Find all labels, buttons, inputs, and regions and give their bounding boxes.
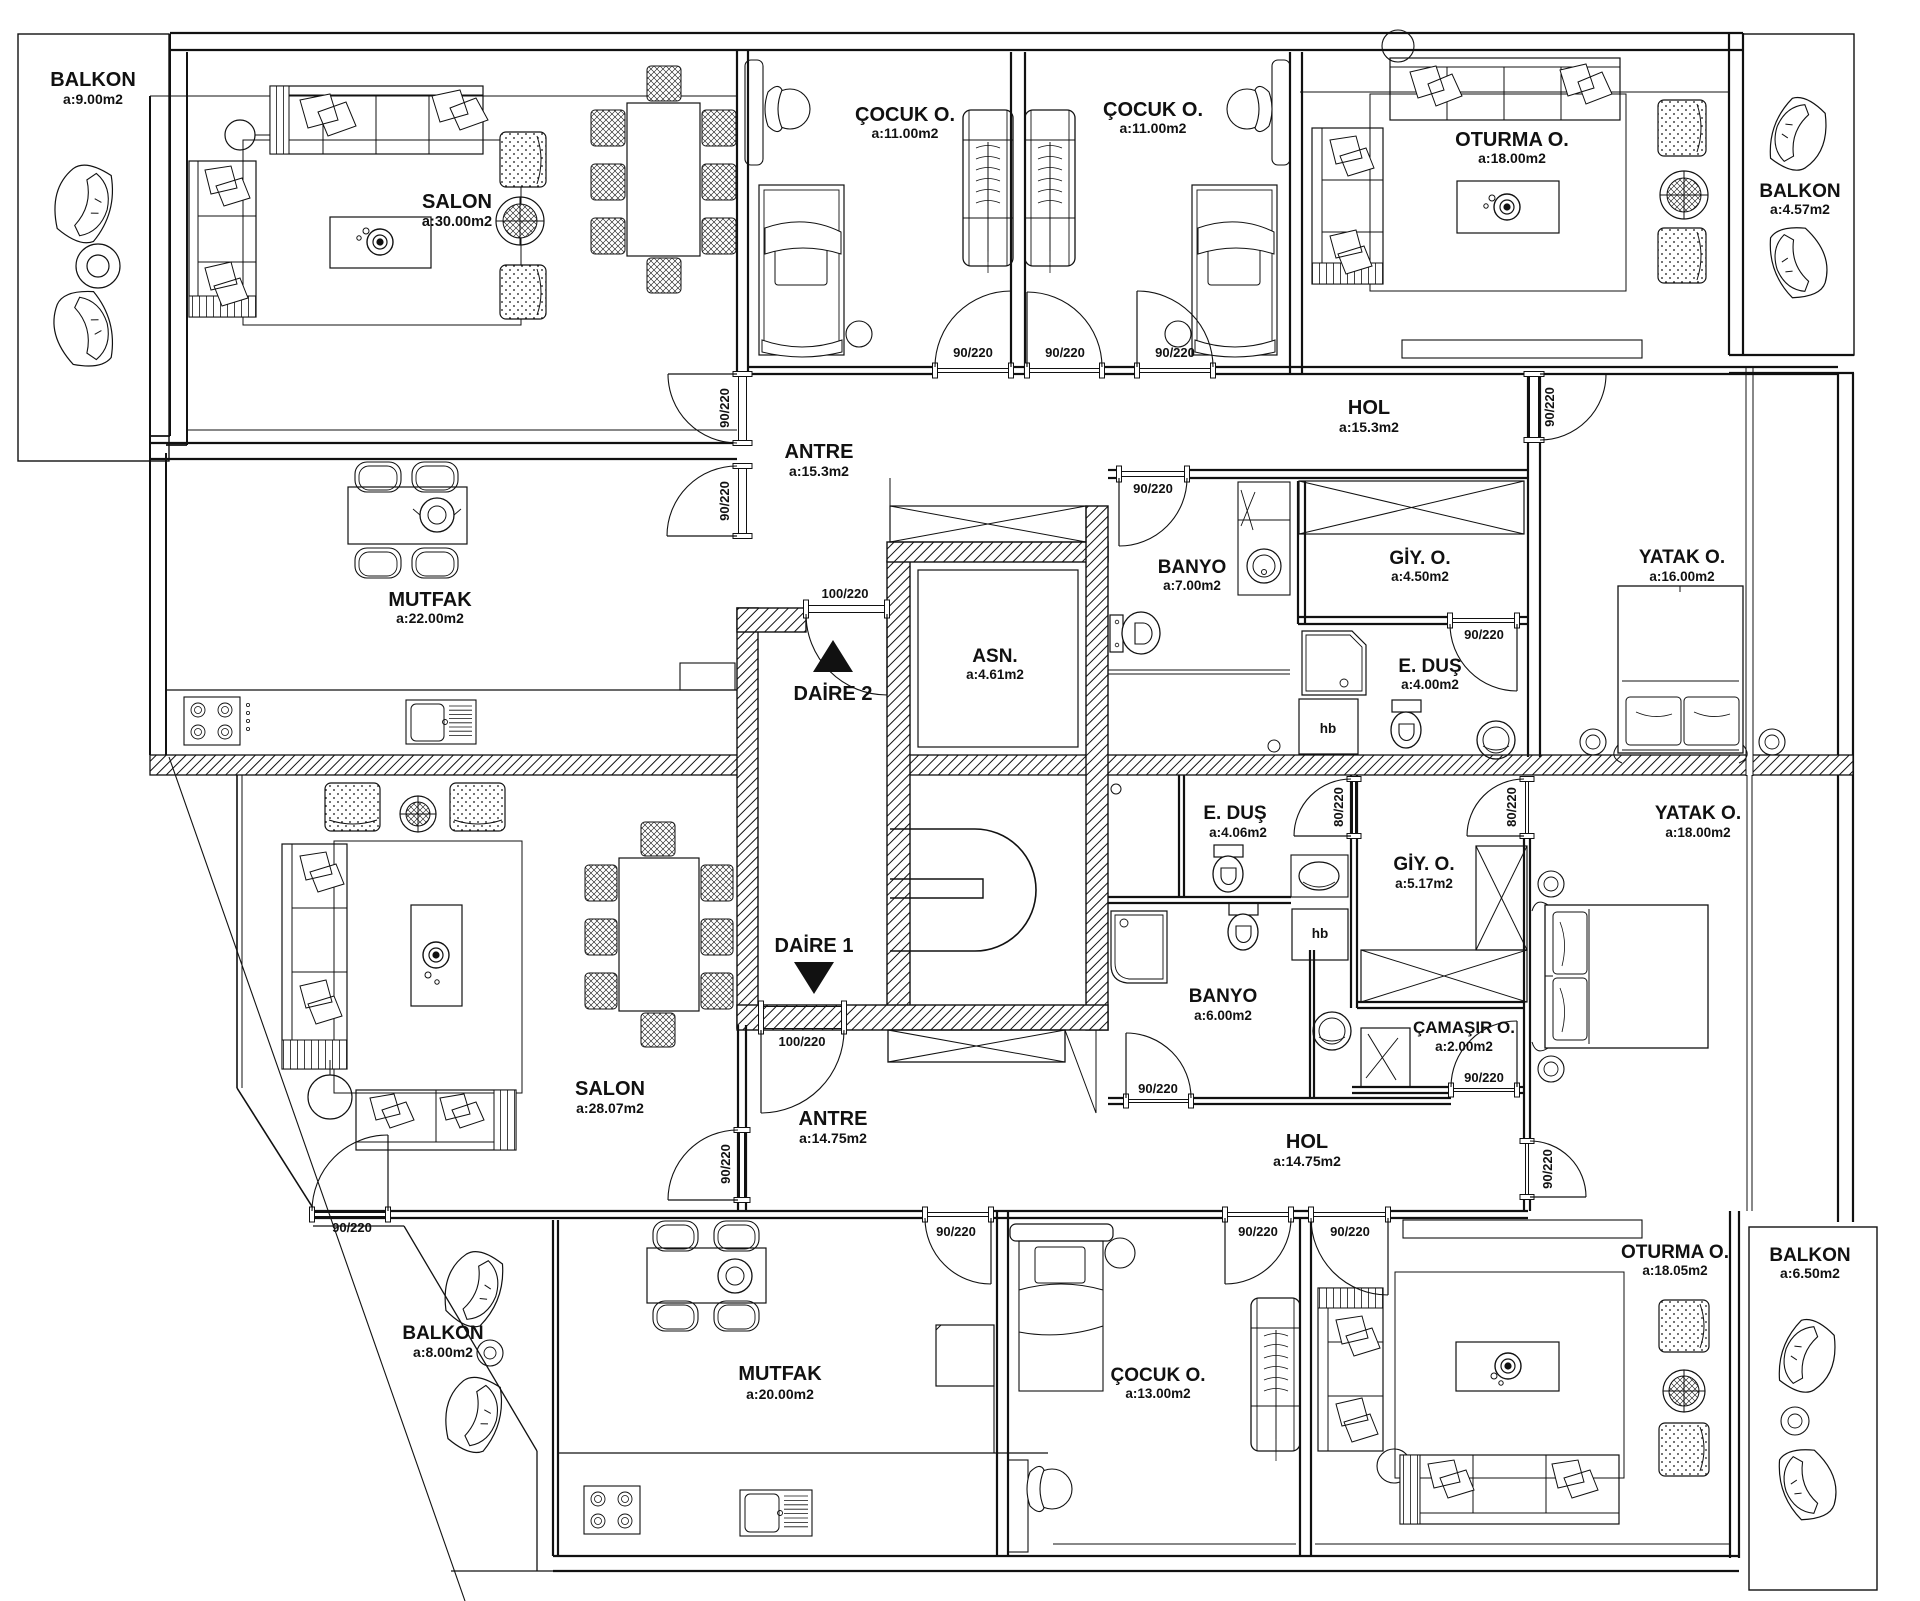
svg-text:OTURMA O.: OTURMA O. bbox=[1621, 1242, 1729, 1263]
svg-text:90/220: 90/220 bbox=[1540, 1149, 1555, 1189]
svg-text:90/220: 90/220 bbox=[332, 1220, 372, 1235]
svg-text:BANYO: BANYO bbox=[1158, 557, 1227, 578]
svg-text:OTURMA O.: OTURMA O. bbox=[1455, 129, 1569, 151]
svg-text:90/220: 90/220 bbox=[1464, 1070, 1504, 1085]
svg-text:90/220: 90/220 bbox=[1542, 387, 1557, 427]
svg-text:MUTFAK: MUTFAK bbox=[388, 589, 472, 611]
svg-text:a:20.00m2: a:20.00m2 bbox=[746, 1386, 814, 1402]
svg-text:YATAK O.: YATAK O. bbox=[1639, 547, 1725, 568]
svg-text:BALKON: BALKON bbox=[1759, 181, 1840, 202]
svg-text:ÇAMAŞIR O.: ÇAMAŞIR O. bbox=[1413, 1018, 1515, 1037]
svg-text:HOL: HOL bbox=[1348, 397, 1390, 419]
svg-text:HOL: HOL bbox=[1286, 1131, 1328, 1153]
svg-text:a:30.00m2: a:30.00m2 bbox=[422, 214, 492, 230]
svg-text:a:2.00m2: a:2.00m2 bbox=[1435, 1039, 1493, 1054]
svg-text:MUTFAK: MUTFAK bbox=[738, 1363, 822, 1385]
svg-text:a:7.00m2: a:7.00m2 bbox=[1163, 578, 1221, 593]
svg-text:a:22.00m2: a:22.00m2 bbox=[396, 610, 464, 626]
svg-text:SALON: SALON bbox=[575, 1078, 645, 1100]
svg-text:DAİRE 1: DAİRE 1 bbox=[775, 934, 854, 957]
svg-text:a:18.00m2: a:18.00m2 bbox=[1665, 825, 1730, 840]
svg-text:a:4.50m2: a:4.50m2 bbox=[1391, 569, 1449, 584]
svg-text:a:4.06m2: a:4.06m2 bbox=[1209, 825, 1267, 840]
svg-text:90/220: 90/220 bbox=[936, 1224, 976, 1239]
svg-text:ANTRE: ANTRE bbox=[799, 1108, 868, 1130]
svg-text:a:18.00m2: a:18.00m2 bbox=[1478, 150, 1546, 166]
svg-text:hb: hb bbox=[1320, 721, 1337, 736]
svg-text:a:15.3m2: a:15.3m2 bbox=[789, 463, 849, 479]
svg-text:GİY. O.: GİY. O. bbox=[1389, 548, 1450, 569]
svg-text:a:18.05m2: a:18.05m2 bbox=[1642, 1263, 1707, 1278]
svg-text:a:11.00m2: a:11.00m2 bbox=[872, 125, 939, 141]
svg-text:GİY. O.: GİY. O. bbox=[1393, 854, 1454, 875]
svg-text:90/220: 90/220 bbox=[1330, 1224, 1370, 1239]
svg-text:SALON: SALON bbox=[422, 191, 492, 213]
svg-text:a:16.00m2: a:16.00m2 bbox=[1649, 569, 1714, 584]
svg-text:90/220: 90/220 bbox=[717, 388, 732, 428]
svg-text:90/220: 90/220 bbox=[1238, 1224, 1278, 1239]
svg-text:hb: hb bbox=[1312, 926, 1329, 941]
svg-text:90/220: 90/220 bbox=[1155, 345, 1195, 360]
svg-text:BALKON: BALKON bbox=[50, 69, 136, 91]
svg-text:90/220: 90/220 bbox=[1464, 627, 1504, 642]
svg-text:ASN.: ASN. bbox=[972, 646, 1017, 667]
svg-text:a:28.07m2: a:28.07m2 bbox=[576, 1100, 644, 1116]
svg-text:a:14.75m2: a:14.75m2 bbox=[799, 1130, 867, 1146]
svg-text:a:13.00m2: a:13.00m2 bbox=[1125, 1386, 1190, 1401]
svg-text:a:5.17m2: a:5.17m2 bbox=[1395, 876, 1453, 891]
svg-text:YATAK O.: YATAK O. bbox=[1655, 803, 1741, 824]
svg-text:90/220: 90/220 bbox=[1138, 1081, 1178, 1096]
svg-text:BALKON: BALKON bbox=[1769, 1245, 1850, 1266]
svg-text:a:9.00m2: a:9.00m2 bbox=[63, 91, 123, 107]
svg-text:90/220: 90/220 bbox=[953, 345, 993, 360]
svg-text:80/220: 80/220 bbox=[1504, 787, 1519, 827]
svg-text:a:6.50m2: a:6.50m2 bbox=[1780, 1265, 1840, 1281]
svg-text:90/220: 90/220 bbox=[1133, 481, 1173, 496]
svg-text:ÇOCUK O.: ÇOCUK O. bbox=[855, 104, 955, 126]
svg-text:BANYO: BANYO bbox=[1189, 986, 1258, 1007]
svg-text:80/220: 80/220 bbox=[1331, 787, 1346, 827]
svg-text:E. DUŞ: E. DUŞ bbox=[1203, 803, 1266, 824]
svg-text:ÇOCUK O.: ÇOCUK O. bbox=[1103, 99, 1203, 121]
svg-text:a:8.00m2: a:8.00m2 bbox=[413, 1344, 473, 1360]
svg-text:a:4.00m2: a:4.00m2 bbox=[1401, 677, 1459, 692]
svg-text:DAİRE 2: DAİRE 2 bbox=[794, 682, 873, 705]
svg-text:a:4.57m2: a:4.57m2 bbox=[1770, 201, 1830, 217]
svg-text:ÇOCUK O.: ÇOCUK O. bbox=[1111, 1365, 1206, 1386]
svg-text:a:14.75m2: a:14.75m2 bbox=[1273, 1153, 1341, 1169]
svg-text:a:4.61m2: a:4.61m2 bbox=[966, 667, 1024, 682]
svg-text:a:11.00m2: a:11.00m2 bbox=[1120, 120, 1187, 136]
svg-text:ANTRE: ANTRE bbox=[785, 441, 854, 463]
svg-text:90/220: 90/220 bbox=[718, 1144, 733, 1184]
svg-text:90/220: 90/220 bbox=[717, 481, 732, 521]
svg-text:100/220: 100/220 bbox=[779, 1034, 826, 1049]
svg-text:90/220: 90/220 bbox=[1045, 345, 1085, 360]
svg-text:a:15.3m2: a:15.3m2 bbox=[1339, 419, 1399, 435]
svg-text:a:6.00m2: a:6.00m2 bbox=[1194, 1008, 1252, 1023]
svg-text:E. DUŞ: E. DUŞ bbox=[1398, 656, 1461, 677]
svg-text:100/220: 100/220 bbox=[822, 586, 869, 601]
